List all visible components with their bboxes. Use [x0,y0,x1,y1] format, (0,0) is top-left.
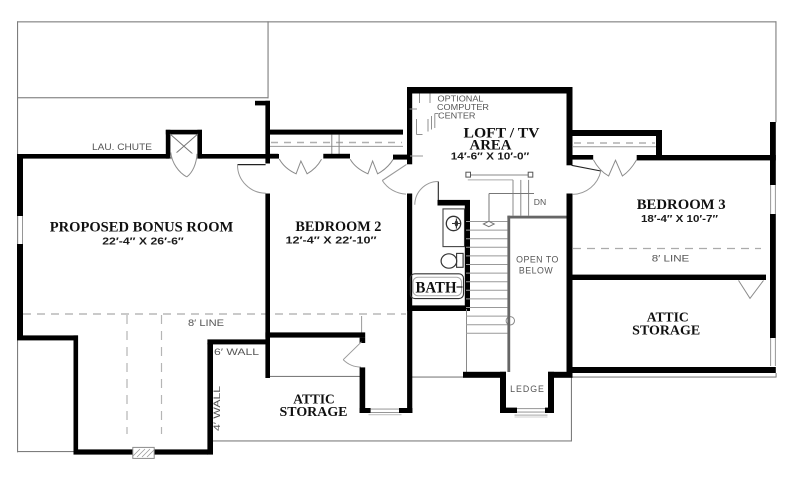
svg-text:BEDROOM 2: BEDROOM 2 [295,219,381,235]
svg-text:LAU. CHUTE: LAU. CHUTE [92,142,152,152]
svg-text:12′-4″ X 22′-10″: 12′-4″ X 22′-10″ [286,236,377,247]
svg-text:BATH: BATH [416,280,458,297]
svg-text:8′ LINE: 8′ LINE [188,318,224,328]
svg-text:CENTER: CENTER [438,111,476,121]
svg-text:22′-4″ X 26′-6″: 22′-4″ X 26′-6″ [102,237,184,248]
svg-text:STORAGE: STORAGE [632,323,700,338]
svg-text:8′ LINE: 8′ LINE [652,254,690,264]
svg-text:LEDGE: LEDGE [510,384,545,394]
svg-text:OPEN TO: OPEN TO [516,255,559,265]
svg-text:14′-6″ X 10′-0″: 14′-6″ X 10′-0″ [451,152,530,163]
svg-text:6′ WALL: 6′ WALL [214,347,259,357]
svg-text:4′ WALL: 4′ WALL [212,386,222,431]
svg-text:18′-4″ X 10′-7″: 18′-4″ X 10′-7″ [641,214,718,225]
svg-text:PROPOSED BONUS ROOM: PROPOSED BONUS ROOM [50,219,234,236]
svg-text:BELOW: BELOW [519,266,553,276]
svg-text:STORAGE: STORAGE [280,404,348,419]
svg-text:DN: DN [534,197,546,207]
svg-text:BEDROOM 3: BEDROOM 3 [637,197,726,213]
